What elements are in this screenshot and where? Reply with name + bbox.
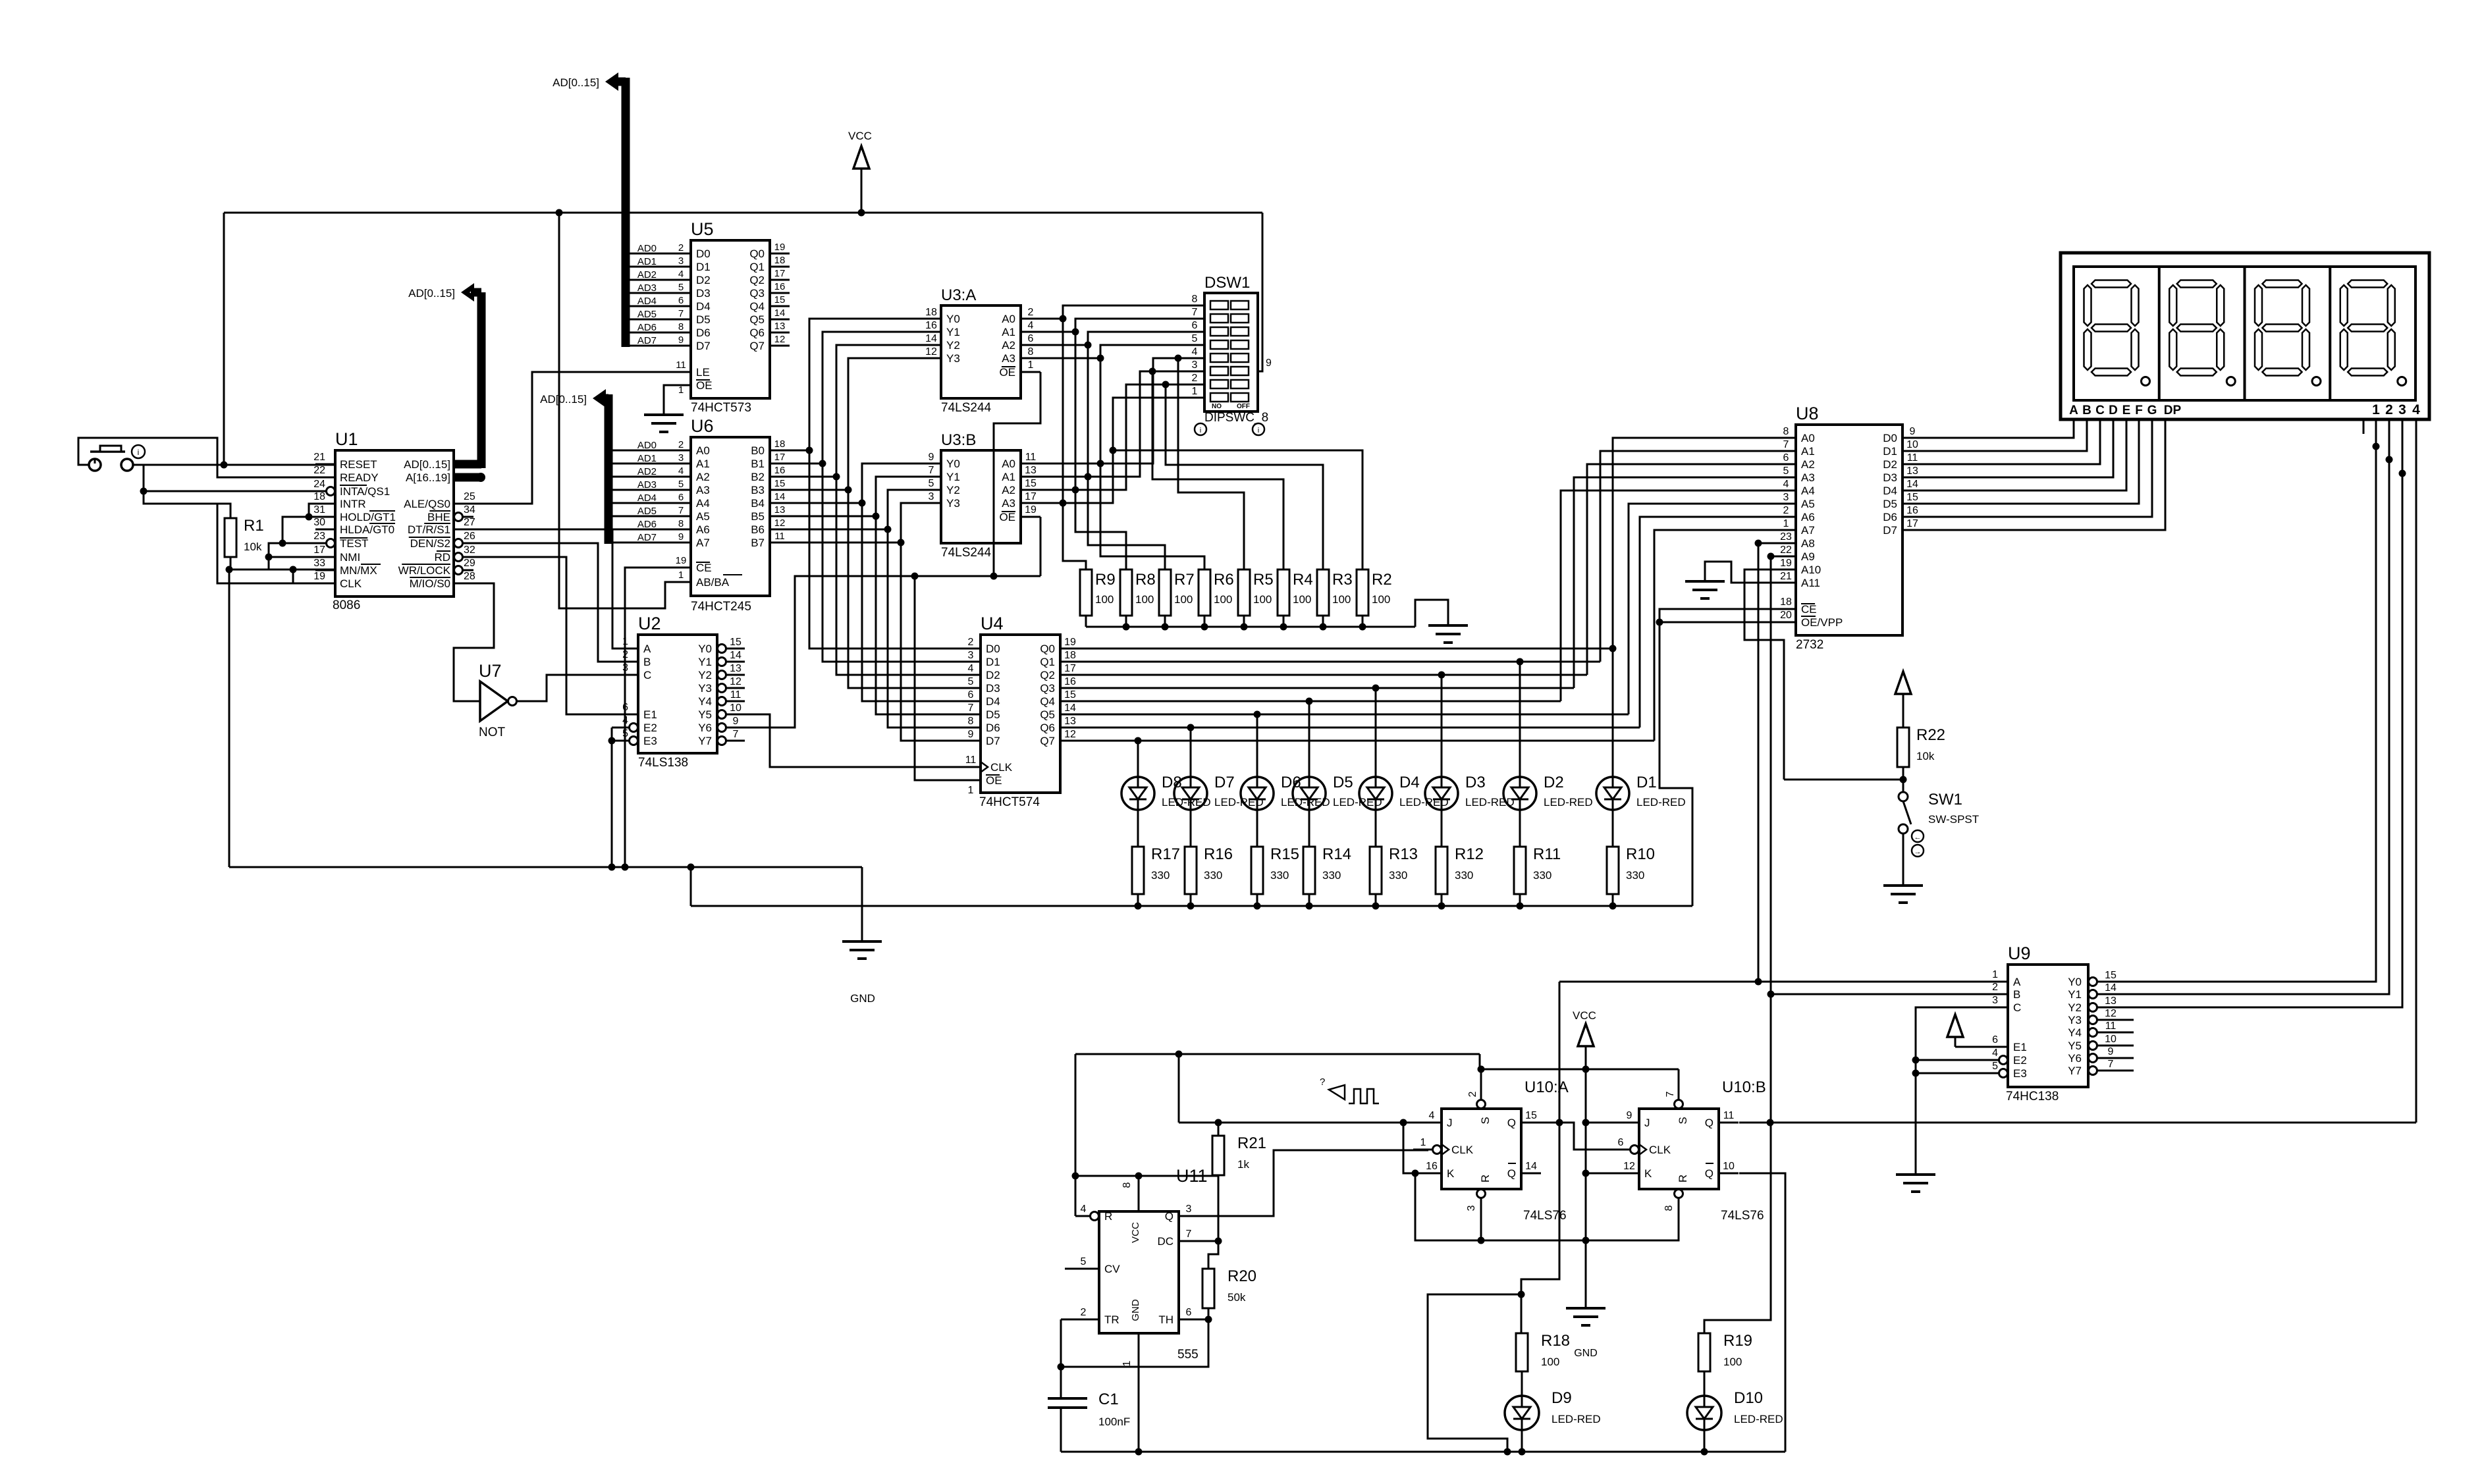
svg-text:R13: R13: [1389, 845, 1418, 863]
svg-text:B4: B4: [751, 497, 765, 510]
svg-text:31: 31: [313, 504, 325, 516]
svg-text:D3: D3: [696, 287, 711, 300]
svg-text:AD2: AD2: [637, 466, 657, 477]
svg-text:32: 32: [464, 544, 475, 556]
svg-text:D9: D9: [1551, 1389, 1572, 1407]
svg-text:A1: A1: [1801, 445, 1815, 458]
svg-text:5: 5: [1192, 333, 1198, 344]
svg-text:A[16..19]: A[16..19]: [406, 471, 450, 484]
svg-text:OE: OE: [999, 511, 1015, 523]
svg-text:D4: D4: [1883, 485, 1897, 497]
svg-text:C1: C1: [1098, 1391, 1119, 1408]
svg-text:D5: D5: [1883, 498, 1897, 510]
svg-text:74HCT574: 74HCT574: [979, 795, 1040, 809]
svg-text:?: ?: [1320, 1076, 1325, 1088]
svg-text:A5: A5: [696, 510, 710, 523]
svg-text:R1: R1: [244, 517, 264, 535]
svg-text:15: 15: [1906, 492, 1918, 503]
svg-text:4: 4: [1028, 320, 1034, 331]
svg-text:8: 8: [1192, 294, 1198, 305]
svg-text:LE: LE: [696, 366, 710, 379]
svg-text:11: 11: [730, 689, 742, 701]
svg-text:16: 16: [925, 320, 937, 331]
svg-text:Y2: Y2: [946, 484, 960, 496]
svg-text:D5: D5: [1333, 774, 1353, 791]
svg-text:A1: A1: [696, 458, 710, 470]
svg-text:AD7: AD7: [637, 335, 657, 346]
svg-text:Y3: Y3: [698, 682, 712, 695]
svg-text:23: 23: [1780, 531, 1792, 543]
svg-text:11: 11: [774, 531, 785, 542]
svg-text:1: 1: [1420, 1137, 1426, 1148]
svg-text:R5: R5: [1253, 571, 1274, 589]
svg-text:RD: RD: [434, 551, 450, 564]
svg-text:9: 9: [678, 531, 684, 543]
svg-text:8086: 8086: [333, 598, 360, 612]
svg-text:33: 33: [313, 558, 325, 569]
svg-text:330: 330: [1270, 869, 1289, 882]
svg-text:11: 11: [965, 755, 977, 766]
svg-text:SW1: SW1: [1928, 791, 1962, 808]
svg-text:4: 4: [1992, 1047, 1998, 1059]
svg-text:4: 4: [968, 663, 974, 674]
svg-text:12: 12: [774, 517, 786, 529]
svg-text:AD0: AD0: [637, 243, 657, 254]
svg-text:A8: A8: [1801, 537, 1815, 550]
svg-text:5: 5: [678, 282, 684, 293]
svg-text:B7: B7: [751, 537, 765, 549]
svg-text:AD0: AD0: [637, 440, 657, 451]
svg-text:Q0: Q0: [1040, 643, 1055, 655]
svg-text:7: 7: [1192, 307, 1198, 318]
svg-text:E2: E2: [643, 722, 657, 734]
svg-text:K: K: [1447, 1167, 1455, 1180]
svg-text:Y0: Y0: [2068, 976, 2082, 988]
svg-text:7: 7: [678, 505, 684, 516]
svg-text:8: 8: [1121, 1182, 1133, 1188]
svg-text:19: 19: [1025, 504, 1037, 516]
svg-text:7: 7: [1186, 1229, 1192, 1240]
svg-text:AB/BA: AB/BA: [696, 576, 730, 589]
svg-text:R: R: [1479, 1175, 1492, 1182]
svg-text:4: 4: [1081, 1204, 1087, 1215]
svg-text:B: B: [2013, 988, 2020, 1001]
svg-text:Q2: Q2: [749, 274, 765, 286]
svg-text:Q2: Q2: [1040, 669, 1055, 681]
svg-text:D7: D7: [986, 735, 1000, 747]
svg-text:GND: GND: [1574, 1348, 1598, 1359]
svg-text:Q7: Q7: [1040, 735, 1055, 747]
svg-text:74HCT245: 74HCT245: [691, 600, 751, 614]
svg-text:8: 8: [678, 321, 684, 332]
svg-text:4: 4: [622, 715, 628, 726]
svg-text:D5: D5: [696, 313, 711, 326]
svg-text:Q1: Q1: [749, 261, 765, 273]
svg-text:D6: D6: [1883, 511, 1897, 523]
svg-text:100: 100: [1253, 593, 1272, 606]
svg-text:74HC138: 74HC138: [2006, 1090, 2059, 1103]
svg-text:19: 19: [313, 571, 325, 582]
svg-text:NOT: NOT: [479, 726, 506, 739]
svg-text:R12: R12: [1455, 845, 1484, 863]
svg-text:OE: OE: [999, 366, 1015, 379]
svg-text:30: 30: [313, 517, 325, 528]
svg-text:3: 3: [678, 255, 684, 267]
svg-text:INTR: INTR: [340, 498, 366, 510]
svg-text:17: 17: [774, 452, 786, 463]
svg-text:CLK: CLK: [990, 761, 1013, 774]
svg-text:4: 4: [1783, 479, 1789, 490]
svg-text:3: 3: [678, 452, 684, 464]
svg-text:READY: READY: [340, 471, 379, 484]
svg-text:Y1: Y1: [946, 471, 960, 483]
svg-text:R6: R6: [1214, 571, 1234, 589]
svg-text:R2: R2: [1372, 571, 1392, 589]
svg-text:20: 20: [1780, 610, 1792, 621]
svg-text:1: 1: [1121, 1360, 1133, 1366]
svg-text:Q5: Q5: [749, 313, 765, 326]
svg-text:R16: R16: [1204, 845, 1233, 863]
svg-text:R7: R7: [1174, 571, 1195, 589]
svg-text:74LS138: 74LS138: [638, 756, 688, 770]
svg-text:330: 330: [1322, 869, 1341, 882]
svg-text:AD[0..15]: AD[0..15]: [540, 393, 587, 406]
svg-text:17: 17: [774, 268, 786, 279]
svg-text:16: 16: [1906, 505, 1918, 516]
svg-text:16: 16: [774, 465, 786, 476]
svg-text:14: 14: [1906, 479, 1918, 490]
svg-text:2: 2: [1028, 307, 1034, 318]
svg-text:Q: Q: [1705, 1167, 1713, 1180]
svg-text:D1: D1: [1883, 445, 1897, 458]
svg-text:D7: D7: [1883, 524, 1897, 537]
svg-text:2: 2: [1081, 1307, 1087, 1318]
svg-text:D7: D7: [696, 340, 711, 352]
svg-text:R20: R20: [1228, 1267, 1256, 1285]
svg-text:Y2: Y2: [698, 669, 712, 681]
svg-text:A2: A2: [696, 471, 710, 483]
svg-text:4: 4: [678, 269, 684, 280]
svg-text:R: R: [1104, 1210, 1112, 1223]
svg-text:Y1: Y1: [946, 326, 960, 338]
svg-text:9: 9: [678, 334, 684, 346]
svg-text:17: 17: [1025, 491, 1037, 502]
svg-text:9: 9: [968, 729, 974, 740]
svg-text:Q6: Q6: [749, 327, 765, 339]
svg-text:Y2: Y2: [2068, 1001, 2082, 1014]
svg-text:D1: D1: [696, 261, 711, 273]
svg-text:100: 100: [1541, 1356, 1559, 1368]
svg-text:10k: 10k: [244, 541, 262, 553]
svg-text:U8: U8: [1796, 404, 1819, 423]
svg-text:100: 100: [1332, 593, 1351, 606]
svg-text:TR: TR: [1104, 1313, 1120, 1326]
svg-text:6: 6: [1618, 1137, 1624, 1148]
svg-text:14: 14: [925, 333, 937, 344]
svg-text:2: 2: [678, 242, 684, 253]
svg-text:Y0: Y0: [698, 643, 712, 655]
svg-text:J: J: [1447, 1117, 1453, 1129]
svg-text:4: 4: [2412, 402, 2420, 417]
svg-text:2: 2: [622, 649, 628, 660]
svg-text:ALE/QS0: ALE/QS0: [404, 498, 450, 510]
svg-text:OE: OE: [986, 774, 1002, 787]
svg-text:LED-RED: LED-RED: [1734, 1413, 1783, 1425]
svg-text:S: S: [1479, 1117, 1492, 1124]
svg-text:R8: R8: [1135, 571, 1156, 589]
svg-text:Y0: Y0: [946, 458, 960, 470]
svg-text:D3: D3: [1465, 774, 1486, 791]
svg-text:A6: A6: [696, 523, 710, 536]
svg-text:13: 13: [730, 663, 742, 674]
svg-text:A6: A6: [1801, 511, 1815, 523]
svg-text:A0: A0: [696, 444, 710, 457]
svg-text:D6: D6: [986, 722, 1000, 734]
svg-text:C: C: [2095, 404, 2105, 417]
svg-text:18: 18: [1780, 596, 1792, 608]
svg-text:16: 16: [774, 281, 786, 292]
svg-text:CLK: CLK: [340, 577, 362, 590]
svg-text:HLDA/GT0: HLDA/GT0: [340, 523, 394, 536]
svg-text:OE/VPP: OE/VPP: [1801, 616, 1843, 629]
svg-text:U9: U9: [2008, 943, 2031, 963]
svg-text:LED-RED: LED-RED: [1544, 796, 1593, 808]
svg-text:Q6: Q6: [1040, 722, 1055, 734]
svg-text:19: 19: [676, 555, 687, 566]
svg-text:D0: D0: [1883, 432, 1897, 444]
svg-text:3: 3: [2398, 402, 2406, 417]
svg-text:12: 12: [1064, 729, 1076, 740]
svg-text:11: 11: [1025, 452, 1037, 463]
svg-text:4: 4: [678, 465, 684, 477]
svg-text:15: 15: [774, 478, 786, 489]
svg-text:TEST: TEST: [340, 537, 368, 550]
svg-text:100: 100: [1174, 593, 1193, 606]
svg-text:13: 13: [1025, 465, 1037, 476]
svg-text:D4: D4: [1399, 774, 1420, 791]
svg-text:U10:B: U10:B: [1722, 1078, 1766, 1096]
svg-text:6: 6: [1992, 1034, 1998, 1046]
svg-text:Q: Q: [1705, 1117, 1713, 1129]
svg-text:A0: A0: [1002, 458, 1015, 470]
svg-text:DEN/S2: DEN/S2: [410, 537, 450, 550]
svg-text:3: 3: [622, 662, 628, 674]
svg-text:2: 2: [1192, 373, 1198, 384]
svg-text:5: 5: [929, 478, 934, 489]
svg-text:D6: D6: [696, 327, 711, 339]
svg-text:15: 15: [1025, 478, 1037, 489]
svg-text:5: 5: [1992, 1061, 1998, 1072]
svg-text:CLK: CLK: [1451, 1144, 1474, 1156]
svg-text:1: 1: [622, 636, 628, 647]
svg-text:7: 7: [678, 308, 684, 319]
svg-text:VCC: VCC: [848, 130, 872, 142]
svg-text:A3: A3: [1002, 352, 1015, 365]
svg-text:GND: GND: [850, 992, 875, 1005]
svg-text:7: 7: [1783, 439, 1789, 450]
svg-text:E2: E2: [2013, 1054, 2027, 1067]
svg-text:2732: 2732: [1796, 638, 1823, 652]
svg-text:R15: R15: [1270, 845, 1299, 863]
svg-text:R: R: [1677, 1175, 1689, 1182]
svg-text:100: 100: [1135, 593, 1154, 606]
svg-text:AD[0..15]: AD[0..15]: [408, 287, 455, 300]
svg-text:D3: D3: [986, 682, 1000, 695]
svg-text:AD6: AD6: [637, 519, 657, 530]
svg-text:1: 1: [1783, 518, 1789, 529]
svg-text:3: 3: [929, 491, 934, 502]
svg-text:100: 100: [1372, 593, 1390, 606]
svg-text:D10: D10: [1734, 1389, 1763, 1407]
svg-text:1: 1: [678, 570, 684, 581]
svg-text:14: 14: [1064, 702, 1076, 714]
svg-text:S: S: [1677, 1117, 1689, 1124]
svg-text:Y0: Y0: [946, 313, 960, 325]
svg-text:23: 23: [313, 531, 325, 542]
svg-text:WR/LOCK: WR/LOCK: [398, 564, 451, 577]
svg-text:R14: R14: [1322, 845, 1351, 863]
svg-text:14: 14: [1525, 1161, 1537, 1172]
svg-text:Q4: Q4: [749, 300, 765, 313]
svg-text:74LS244: 74LS244: [941, 401, 992, 415]
svg-text:R4: R4: [1293, 571, 1313, 589]
svg-text:i: i: [1258, 427, 1259, 435]
svg-text:6: 6: [622, 702, 628, 713]
svg-text:F: F: [2135, 404, 2143, 417]
svg-text:21: 21: [1780, 571, 1792, 582]
svg-text:CE: CE: [696, 562, 712, 574]
svg-text:A11: A11: [1801, 577, 1820, 589]
svg-text:R18: R18: [1541, 1332, 1570, 1350]
svg-text:15: 15: [774, 294, 786, 305]
svg-text:A0: A0: [1002, 313, 1015, 325]
svg-text:14: 14: [774, 307, 786, 319]
svg-text:A: A: [643, 643, 651, 655]
svg-text:A5: A5: [1801, 498, 1815, 510]
svg-text:B1: B1: [751, 458, 765, 470]
svg-text:50k: 50k: [1228, 1291, 1246, 1304]
svg-text:G: G: [2147, 404, 2157, 417]
svg-text:2: 2: [678, 439, 684, 450]
svg-text:7: 7: [2108, 1059, 2114, 1070]
svg-text:5: 5: [678, 479, 684, 490]
svg-text:19: 19: [1064, 637, 1076, 648]
svg-text:9: 9: [2108, 1046, 2114, 1057]
svg-text:U5: U5: [691, 219, 714, 239]
svg-text:15: 15: [1064, 689, 1076, 701]
svg-text:AD7: AD7: [637, 532, 657, 543]
svg-text:6: 6: [678, 295, 684, 306]
svg-text:AD[0..15]: AD[0..15]: [404, 458, 450, 471]
svg-text:2: 2: [1992, 982, 1998, 993]
svg-text:74LS244: 74LS244: [941, 546, 992, 560]
svg-text:4: 4: [1192, 346, 1198, 358]
svg-text:1: 1: [968, 785, 974, 796]
svg-text:7: 7: [929, 465, 934, 476]
svg-text:A2: A2: [1801, 458, 1815, 471]
svg-text:A: A: [2013, 976, 2021, 988]
svg-text:9: 9: [1266, 358, 1272, 369]
svg-text:U6: U6: [691, 416, 714, 436]
svg-text:Q3: Q3: [749, 287, 765, 300]
svg-text:Y1: Y1: [2068, 988, 2082, 1001]
svg-text:100nF: 100nF: [1098, 1416, 1130, 1428]
svg-text:AD4: AD4: [637, 296, 657, 307]
svg-text:A3: A3: [1801, 471, 1815, 484]
svg-text:10: 10: [1723, 1161, 1735, 1172]
svg-text:A3: A3: [1002, 497, 1015, 510]
svg-text:330: 330: [1455, 869, 1473, 882]
svg-text:100: 100: [1214, 593, 1232, 606]
svg-text:22: 22: [1780, 544, 1792, 556]
svg-text:330: 330: [1151, 869, 1170, 882]
svg-text:5: 5: [1783, 465, 1789, 477]
svg-text:1k: 1k: [1237, 1158, 1249, 1171]
svg-text:11: 11: [1723, 1110, 1735, 1121]
svg-text:330: 330: [1204, 869, 1222, 882]
svg-text:R21: R21: [1237, 1134, 1266, 1152]
svg-text:Q3: Q3: [1040, 682, 1055, 695]
svg-text:A4: A4: [1801, 485, 1815, 497]
svg-text:Y6: Y6: [2068, 1052, 2082, 1065]
svg-text:11: 11: [2105, 1020, 2117, 1032]
svg-text:555: 555: [1177, 1348, 1199, 1362]
svg-text:9: 9: [733, 716, 739, 727]
svg-text:13: 13: [2105, 995, 2117, 1007]
svg-text:Y1: Y1: [698, 656, 712, 668]
svg-text:B0: B0: [751, 444, 765, 457]
svg-text:15: 15: [1525, 1110, 1537, 1121]
svg-text:A2: A2: [1002, 339, 1015, 352]
svg-text:18: 18: [925, 307, 937, 318]
svg-text:D2: D2: [1883, 458, 1897, 471]
svg-text:A4: A4: [696, 497, 710, 510]
svg-text:SW-SPST: SW-SPST: [1928, 813, 1979, 826]
svg-text:6: 6: [1192, 320, 1198, 331]
svg-text:Y3: Y3: [946, 352, 960, 365]
svg-text:Q: Q: [1165, 1210, 1174, 1223]
svg-text:R19: R19: [1723, 1332, 1752, 1350]
svg-text:Q: Q: [1507, 1167, 1516, 1180]
svg-text:R10: R10: [1626, 845, 1655, 863]
svg-text:B: B: [643, 656, 651, 668]
svg-text:3: 3: [1783, 492, 1789, 503]
svg-text:2: 2: [1467, 1091, 1478, 1097]
svg-text:1: 1: [1192, 386, 1198, 397]
svg-text:D0: D0: [986, 643, 1000, 655]
svg-text:R3: R3: [1332, 571, 1353, 589]
svg-text:74LS76: 74LS76: [1721, 1209, 1764, 1223]
svg-text:3: 3: [1992, 995, 1998, 1006]
svg-text:9: 9: [929, 452, 934, 463]
svg-text:12: 12: [774, 334, 786, 345]
svg-text:E3: E3: [2013, 1067, 2027, 1080]
svg-text:Y6: Y6: [698, 722, 712, 734]
svg-text:i: i: [138, 448, 140, 457]
svg-text:74HCT573: 74HCT573: [691, 401, 751, 415]
svg-text:100: 100: [1723, 1356, 1742, 1368]
svg-text:26: 26: [464, 531, 475, 542]
svg-text:U1: U1: [335, 429, 358, 449]
svg-text:C: C: [643, 669, 651, 681]
svg-text:Q5: Q5: [1040, 708, 1055, 721]
svg-text:9: 9: [1910, 426, 1916, 437]
svg-text:D3: D3: [1883, 471, 1897, 484]
svg-text:E: E: [2122, 404, 2131, 417]
svg-text:OE: OE: [696, 379, 713, 392]
svg-text:10k: 10k: [1916, 750, 1935, 762]
svg-text:8: 8: [1783, 426, 1789, 437]
